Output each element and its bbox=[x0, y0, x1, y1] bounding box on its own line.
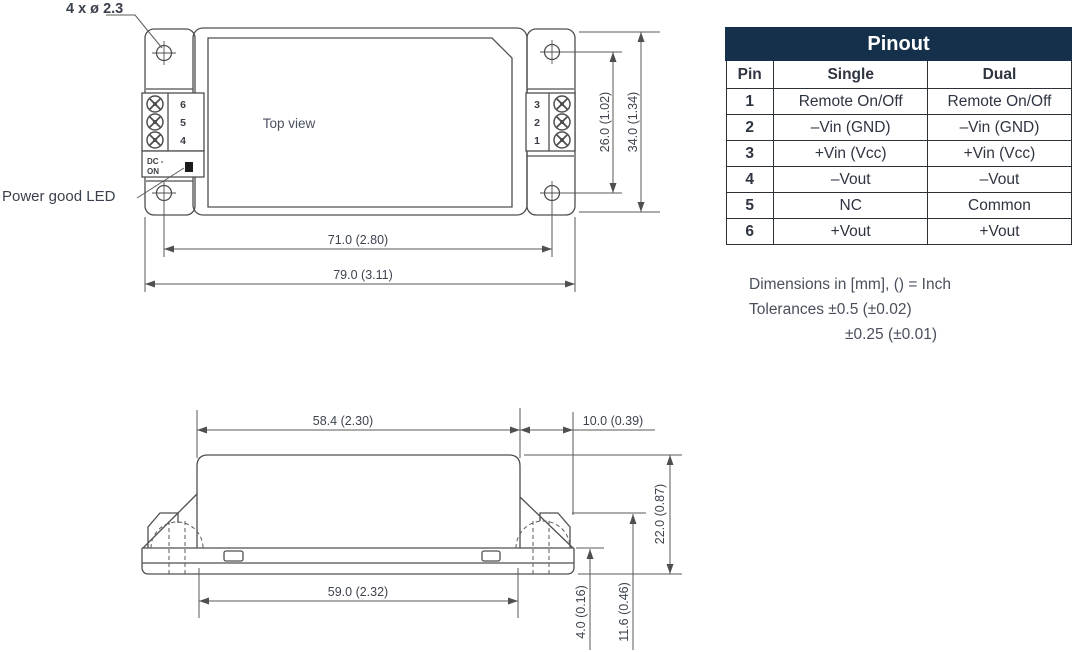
screw-terminal-icon bbox=[147, 96, 163, 112]
pin-cell: 2 bbox=[726, 115, 773, 141]
right-terminal-block: 3 2 1 bbox=[526, 93, 575, 151]
dim-bracket-height: 11.6 (0.46) bbox=[617, 582, 631, 642]
table-row: 4 –Vout –Vout bbox=[726, 167, 1071, 193]
hole-callout-label: 4 x ø 2.3 bbox=[66, 1, 123, 17]
top-surface-outline bbox=[208, 38, 512, 207]
screw-terminal-icon bbox=[554, 96, 570, 112]
dim-flange-ext: 10.0 (0.39) bbox=[583, 414, 643, 428]
pinout-table-title: Pinout bbox=[726, 28, 1071, 60]
single-cell: NC bbox=[773, 193, 928, 219]
dim-overall-height: 34.0 (1.34) bbox=[626, 92, 640, 152]
side-view-drawing: 58.4 (2.30) 10.0 (0.39) 22.0 (0.87) 59.0… bbox=[142, 408, 682, 650]
table-row: 3 +Vin (Vcc) +Vin (Vcc) bbox=[726, 141, 1071, 167]
pin-cell: 4 bbox=[726, 167, 773, 193]
power-good-led-label: Power good LED bbox=[2, 188, 116, 205]
dual-cell: –Vin (GND) bbox=[928, 115, 1071, 141]
base-slot bbox=[224, 551, 243, 561]
dimension-notes: Dimensions in [mm], () = Inch Tolerances… bbox=[749, 272, 1079, 347]
pin-number-5: 5 bbox=[180, 117, 186, 129]
pin-cell: 1 bbox=[726, 89, 773, 115]
dim-height: 22.0 (0.87) bbox=[653, 484, 667, 544]
single-cell: +Vin (Vcc) bbox=[773, 141, 928, 167]
single-cell: –Vout bbox=[773, 167, 928, 193]
right-bracket bbox=[520, 497, 573, 548]
note-units: Dimensions in [mm], () = Inch bbox=[749, 272, 1079, 297]
pin-cell: 6 bbox=[726, 219, 773, 245]
dim-body-width: 58.4 (2.30) bbox=[313, 414, 373, 428]
mechanical-drawing-page: 6 5 4 DC - ON 3 2 1 Top view bbox=[0, 0, 1080, 652]
pin-cell: 3 bbox=[726, 141, 773, 167]
top-view-drawing: 6 5 4 DC - ON 3 2 1 Top view bbox=[2, 1, 660, 292]
dim-hole-spacing-y: 26.0 (1.02) bbox=[598, 92, 612, 152]
dim-hole-spacing-x: 71.0 (2.80) bbox=[328, 233, 388, 247]
power-good-led-indicator bbox=[185, 162, 193, 172]
side-body-outline bbox=[197, 455, 520, 548]
pin-number-1: 1 bbox=[534, 135, 540, 147]
top-view-label: Top view bbox=[263, 116, 316, 131]
pin-number-2: 2 bbox=[534, 117, 540, 129]
left-bracket bbox=[143, 494, 197, 548]
dual-cell: +Vout bbox=[928, 219, 1071, 245]
base-plate bbox=[142, 548, 574, 574]
base-slot bbox=[482, 551, 500, 561]
note-tolerance-2: ±0.25 (±0.01) bbox=[749, 322, 937, 347]
screw-terminal-icon bbox=[554, 114, 570, 130]
single-cell: Remote On/Off bbox=[773, 89, 928, 115]
left-terminal-block: 6 5 4 DC - ON bbox=[142, 93, 204, 177]
pinout-col-single: Single bbox=[773, 60, 928, 89]
pin-cell: 5 bbox=[726, 193, 773, 219]
screw-terminal-icon bbox=[147, 132, 163, 148]
dual-cell: Remote On/Off bbox=[928, 89, 1071, 115]
table-row: 2 –Vin (GND) –Vin (GND) bbox=[726, 115, 1071, 141]
dim-base-width: 59.0 (2.32) bbox=[328, 585, 388, 599]
screw-terminal-icon bbox=[554, 132, 570, 148]
table-row: 6 +Vout +Vout bbox=[726, 219, 1071, 245]
pin-number-3: 3 bbox=[534, 99, 540, 111]
pinout-col-pin: Pin bbox=[726, 60, 773, 89]
dc-on-label-line2: ON bbox=[147, 167, 159, 176]
dc-on-label-line1: DC - bbox=[147, 157, 164, 166]
table-row: 5 NC Common bbox=[726, 193, 1071, 219]
dual-cell: –Vout bbox=[928, 167, 1071, 193]
table-row: 1 Remote On/Off Remote On/Off bbox=[726, 89, 1071, 115]
pin-number-6: 6 bbox=[180, 99, 186, 111]
single-cell: +Vout bbox=[773, 219, 928, 245]
dim-standoff: 4.0 (0.16) bbox=[574, 585, 588, 639]
single-cell: –Vin (GND) bbox=[773, 115, 928, 141]
dual-cell: +Vin (Vcc) bbox=[928, 141, 1071, 167]
dual-cell: Common bbox=[928, 193, 1071, 219]
dim-overall-width: 79.0 (3.11) bbox=[333, 268, 393, 282]
pin-number-4: 4 bbox=[180, 135, 186, 147]
pinout-table: Pinout Pin Single Dual 1 Remote On/Off R… bbox=[725, 27, 1072, 245]
screw-terminal-icon bbox=[147, 114, 163, 130]
note-tolerance-1: Tolerances ±0.5 (±0.02) bbox=[749, 297, 1079, 322]
pinout-col-dual: Dual bbox=[928, 60, 1071, 89]
